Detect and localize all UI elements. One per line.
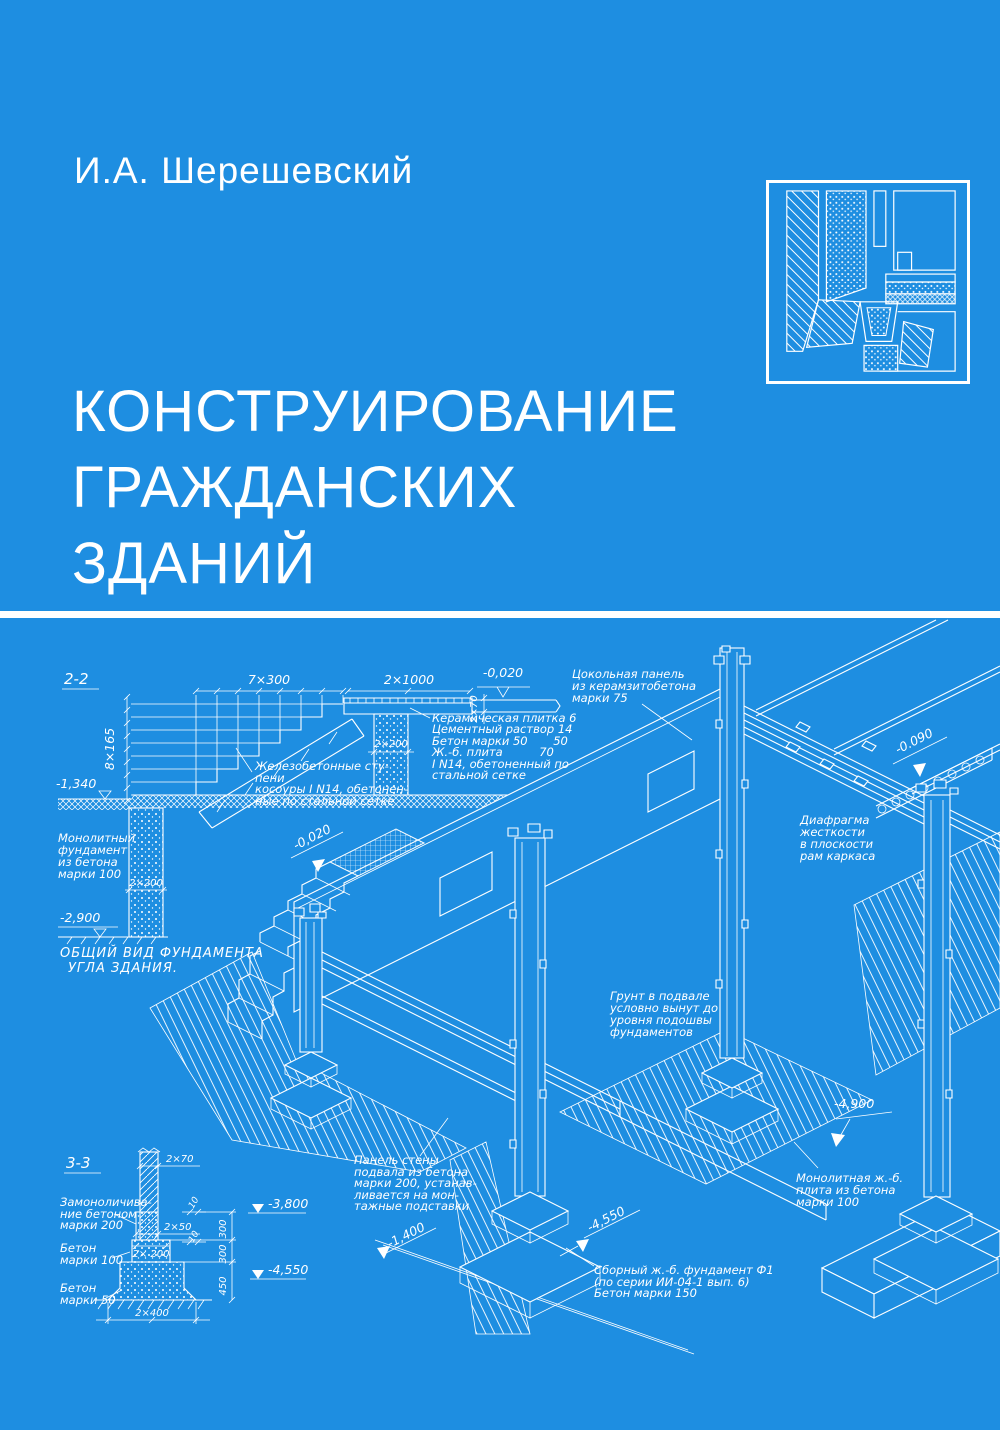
book-title-line-3: ЗДАНИЙ	[72, 526, 679, 602]
label-grout-3: марки 200	[60, 1218, 123, 1232]
label-dim-300a: 300	[218, 1219, 229, 1238]
label-mono-slab-3: марки 100	[796, 1195, 859, 1209]
label-floor-note-6: стальной сетке	[432, 768, 526, 782]
label-dim-2x50: 2×50	[164, 1222, 191, 1233]
wall-detail-drawing	[769, 183, 967, 381]
label-precast-3: Бетон марки 150	[594, 1286, 697, 1300]
author-name: И.А. Шерешевский	[74, 150, 413, 192]
wall-detail-shapes	[787, 191, 955, 371]
label-general-view-1: ОБЩИЙ ВИД ФУНДАМЕНТА	[60, 945, 264, 961]
label-socle-note-3: марки 75	[572, 691, 628, 705]
label-level-2900: -2,900	[60, 910, 100, 925]
label-dim-8x165: 8×165	[102, 728, 117, 770]
label-level-0090: -0.090	[893, 725, 936, 757]
label-section-2-2: 2-2	[64, 670, 89, 688]
label-level-1340: -1,340	[56, 776, 96, 791]
label-level-4550-iso: -4,550	[585, 1203, 628, 1235]
label-general-view-2: УГЛА ЗДАНИЯ.	[68, 961, 178, 976]
title-divider-band	[0, 611, 1000, 618]
label-dim-2x200-wall: 2×200	[374, 739, 408, 750]
label-dim-2x70-col: 2×70	[166, 1154, 193, 1165]
label-mono-found-4: марки 100	[58, 867, 121, 881]
label-dim-300b: 300	[218, 1244, 229, 1263]
label-soil-note-4: фундаментов	[610, 1025, 693, 1039]
label-b50-2: марки 50	[60, 1293, 116, 1307]
label-level-4550-section: -4,550	[268, 1262, 308, 1277]
label-dim-1400: -1,400	[385, 1219, 428, 1251]
label-steps-note-4: ные по стальной сетке	[255, 794, 395, 808]
book-title-line-1: КОНСТРУИРОВАНИЕ	[72, 374, 679, 450]
label-level-3800: -3,800	[268, 1196, 308, 1211]
label-level-4900: -4,900	[834, 1096, 874, 1111]
book-cover: И.А. Шерешевский	[0, 0, 1000, 1430]
book-title-line-2: ГРАЖДАНСКИХ	[72, 450, 679, 526]
book-title: КОНСТРУИРОВАНИЕ ГРАЖДАНСКИХ ЗДАНИЙ	[72, 374, 679, 602]
label-dim-7x300: 7×300	[248, 672, 290, 687]
label-level-0020-section: -0,020	[483, 665, 523, 680]
label-diaphragm-4: рам каркаса	[799, 849, 875, 863]
label-dim-10a: 10	[187, 1195, 202, 1210]
label-dim-2x1000: 2×1000	[384, 672, 434, 687]
label-wall-panel-5: тажные подставки	[354, 1199, 470, 1213]
label-dim-450: 450	[218, 1276, 229, 1295]
technical-drawing: 2-2 7×300 2×1000 -0,020 2×70 8×165 -1,34…	[0, 618, 1000, 1430]
label-section-3-3: 3-3	[66, 1154, 91, 1172]
label-dim-2x400: 2×400	[135, 1308, 169, 1319]
wall-detail-thumbnail	[766, 180, 970, 384]
label-dim-2x200-block: 2× 200	[132, 1249, 169, 1260]
label-dim-2x200-found: 2×200	[129, 878, 163, 889]
label-b100-2: марки 100	[60, 1253, 123, 1267]
